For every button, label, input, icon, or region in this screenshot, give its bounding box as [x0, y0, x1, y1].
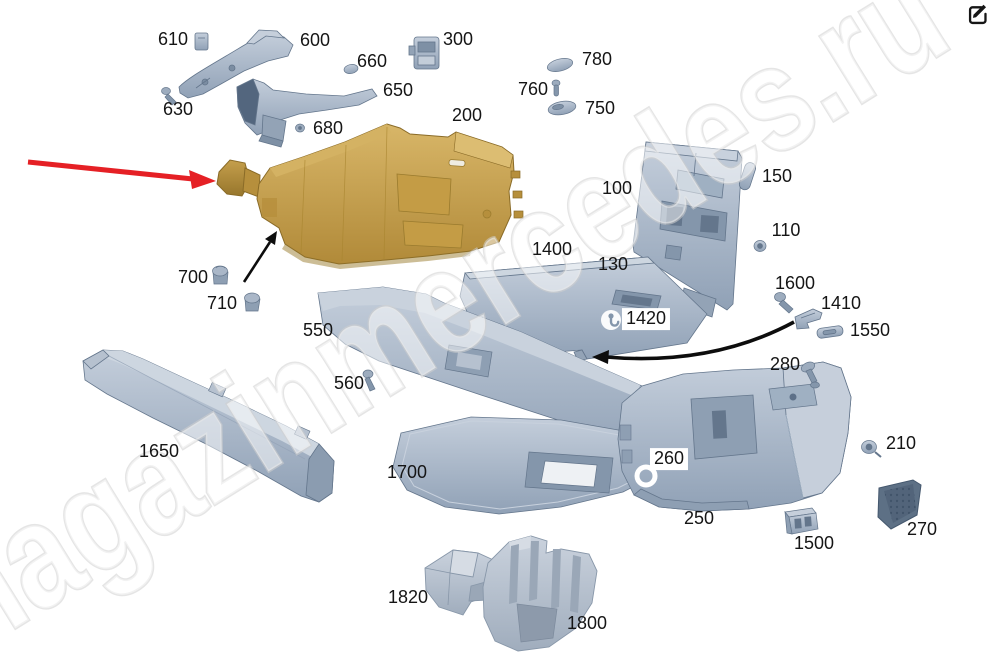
- part-1600-shape: [775, 293, 794, 314]
- edit-icon: [967, 4, 989, 26]
- part-1410-shape: [795, 309, 822, 329]
- diagram-image[interactable]: magazinmercedes.ru: [0, 0, 994, 661]
- part-700-shape: [213, 266, 229, 284]
- part-270-shape: [878, 480, 921, 529]
- part-610-shape: [195, 33, 208, 50]
- part-680-shape: [296, 124, 305, 132]
- part-300-shape: [409, 37, 439, 69]
- luggage-hook-icon: [601, 310, 621, 330]
- callout-arrow-to-200: [244, 231, 277, 282]
- part-630-shape: [162, 88, 177, 106]
- part-760-shape: [552, 80, 560, 96]
- part-1550-shape: [816, 325, 843, 339]
- edit-button[interactable]: [967, 4, 989, 26]
- highlight-arrow-red: [28, 162, 216, 189]
- part-110-shape: [754, 241, 766, 252]
- part-660-shape: [343, 63, 358, 74]
- parts-diagram-page: magazinmercedes.ru 610600300660780760650…: [0, 0, 994, 661]
- part-1800-shape: [483, 536, 597, 651]
- part-210-shape: [862, 441, 882, 458]
- part-780-shape: [546, 56, 574, 74]
- part-710-shape: [245, 293, 261, 311]
- part-750-shape: [547, 99, 577, 117]
- part-1500-shape: [785, 508, 818, 534]
